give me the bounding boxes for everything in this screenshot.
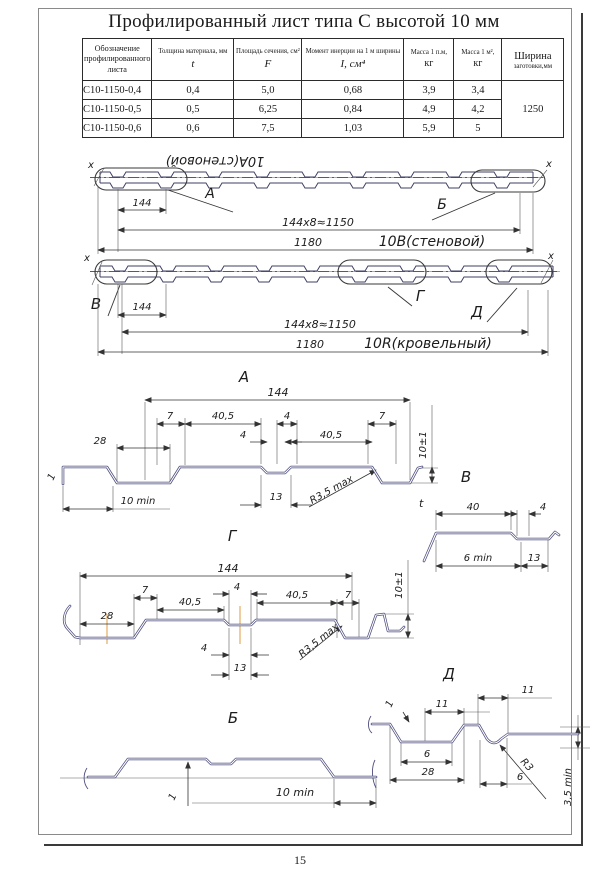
- dim-label: 6 min: [464, 553, 492, 564]
- strip1-drawing: 10А(стеновой) х х А Б 144 144х8≈1150: [87, 153, 552, 254]
- table-cell: 5: [454, 119, 502, 138]
- col-header-area: Площадь сечения, см²F: [234, 39, 302, 81]
- table-cell: 7,5: [234, 119, 302, 138]
- callout-letter-b: Б: [437, 197, 447, 213]
- table-cell: 3,4: [454, 81, 502, 100]
- table-cell: С10-1150-0,6: [83, 119, 152, 138]
- section-axis-mark: х: [87, 160, 94, 171]
- callout-letter-d: Д: [470, 303, 483, 321]
- detail-g-dimensions: 144 7 40,5 4 40,5 7 28 4 13: [80, 560, 414, 680]
- dim-label: 7: [142, 585, 149, 596]
- strip1-dimensions: 144 144х8≈1150 1180 10В(стеновой): [98, 186, 533, 254]
- dim-label: 40,5: [212, 411, 234, 422]
- table-row: С10-1150-0,6 0,6 7,5 1,03 5,9 5: [83, 119, 564, 138]
- dim-label: 3,5 min: [563, 768, 574, 806]
- col-header-inertia: Момент инерции на 1 м шириныI, см⁴: [302, 39, 404, 81]
- table-cell: 5,9: [404, 119, 454, 138]
- dim-label: 10 min: [276, 786, 314, 799]
- table-cell: 3,9: [404, 81, 454, 100]
- table-cell: 0,5: [152, 100, 234, 119]
- dim-label: 40,5: [286, 590, 308, 601]
- dim-label: 1: [384, 699, 397, 709]
- callout-letter-v: В: [91, 295, 101, 313]
- strip2-drawing: х х В Г Д 144 144х8≈1150 1180 10R(кровел…: [83, 251, 560, 356]
- table-cell: 5,0: [234, 81, 302, 100]
- callout-letter-a: А: [204, 186, 215, 202]
- dim-label: 11: [436, 699, 449, 710]
- dim-label: 28: [422, 767, 435, 778]
- dim-label: 4: [284, 411, 290, 422]
- detail-d-drawing: Д 1 11 11 6 28 6 R3: [368, 665, 590, 806]
- table-cell: 6,25: [234, 100, 302, 119]
- dim-label: 144: [268, 386, 289, 399]
- detail-v-drawing: В 40 4 6 min 13: [424, 468, 559, 572]
- detail-label-d: Д: [442, 665, 455, 683]
- detail-v-dimensions: 40 4 6 min 13: [436, 502, 548, 572]
- dim-label: 28: [101, 611, 114, 622]
- dim-label: 4: [201, 643, 207, 654]
- table-row: С10-1150-0,4 0,4 5,0 0,68 3,9 3,4 1250: [83, 81, 564, 100]
- dim-label: 7: [379, 411, 386, 422]
- detail-b-drawing: Б 1 10 min: [60, 709, 376, 808]
- table-cell: 1,03: [302, 119, 404, 138]
- dim-label: 13: [528, 553, 541, 564]
- radius-note: R3,5 max: [308, 474, 355, 507]
- dim-label: 1180: [296, 338, 324, 351]
- detail-d-dimensions: 1 11 11 6 28 6 R3 3,5 min: [384, 685, 590, 806]
- section-axis-mark: х: [547, 251, 554, 262]
- detail-label-b: Б: [228, 709, 238, 727]
- dim-label: 4: [540, 502, 546, 513]
- dim-label: 13: [270, 492, 283, 503]
- table-row: С10-1150-0,5 0,5 6,25 0,84 4,9 4,2: [83, 100, 564, 119]
- dim-label: 144: [218, 562, 239, 575]
- dim-label: 7: [167, 411, 174, 422]
- col-header-mass-m2: Масса 1 м²,кг: [454, 39, 502, 81]
- table-cell: 0,84: [302, 100, 404, 119]
- dim-label: 11: [522, 685, 535, 696]
- table-cell-blank-width: 1250: [502, 81, 564, 138]
- dim-label: 4: [234, 582, 240, 593]
- detail-callout-oval-b: [471, 170, 545, 192]
- sheet-name-label: 10В(стеновой): [379, 234, 485, 250]
- dim-label: 40: [467, 502, 480, 513]
- detail-label-a: А: [238, 368, 249, 386]
- dim-label: 10±1: [394, 571, 405, 598]
- dim-label: 6: [424, 749, 430, 760]
- page-title: Профилированный лист типа С высотой 10 м…: [40, 11, 568, 33]
- detail-g-drawing: Г 144 7 40,5 4 40,5 7 28: [64, 527, 414, 680]
- table-cell: 4,9: [404, 100, 454, 119]
- detail-a-dimensions: 144 7 40,5 4 7 4 40,5 28 10 min: [46, 386, 438, 512]
- strip1-flipped-name: 10А(стеновой): [166, 153, 265, 168]
- col-header-designation: Обозначение профилированного листа: [83, 39, 152, 81]
- dim-label: 1: [46, 472, 59, 482]
- dim-label: 144х8≈1150: [282, 216, 354, 229]
- dim-label: 1180: [294, 236, 322, 249]
- dim-label: 40,5: [179, 597, 201, 608]
- dim-label: 10±1: [418, 431, 429, 458]
- page-number: 15: [0, 853, 600, 868]
- detail-callout-oval-a: [95, 168, 187, 190]
- table-cell: 0,4: [152, 81, 234, 100]
- detail-label-g: Г: [228, 527, 238, 545]
- drawing-page: Профилированный лист типа С высотой 10 м…: [0, 0, 600, 885]
- profile-drawings: 10А(стеновой) х х А Б 144 144х8≈1150: [0, 140, 600, 885]
- dim-label: 4: [240, 430, 246, 441]
- dim-label: 7: [345, 590, 352, 601]
- sheet-name-label: 10R(кровельный): [364, 336, 492, 352]
- detail-a-drawing: А 144 7 40,5 4 7 4 40,5 28: [46, 368, 438, 512]
- col-header-blank-width: Шириназаготовки,мм: [502, 39, 564, 81]
- dim-label: 40,5: [320, 430, 342, 441]
- section-axis-mark: х: [83, 253, 90, 264]
- dim-label: 144х8≈1150: [284, 318, 356, 331]
- table-cell: 4,2: [454, 100, 502, 119]
- detail-label-v: В: [461, 468, 471, 486]
- spec-table: Обозначение профилированного листа Толщи…: [82, 38, 564, 138]
- col-header-mass-lm: Масса 1 п.м,кг: [404, 39, 454, 81]
- dim-label: 10 min: [121, 496, 156, 507]
- table-cell: С10-1150-0,4: [83, 81, 152, 100]
- dim-label: 144: [132, 198, 151, 209]
- dim-label: 28: [94, 436, 107, 447]
- dim-label: 6: [517, 772, 523, 783]
- table-cell: 0,68: [302, 81, 404, 100]
- dim-label: 13: [234, 663, 247, 674]
- table-cell: 0,6: [152, 119, 234, 138]
- dim-label: 1: [167, 792, 180, 802]
- section-axis-mark: х: [545, 159, 552, 170]
- col-header-thickness: Толщина материала, ммt: [152, 39, 234, 81]
- radius-note: R3,5 max: [297, 622, 341, 661]
- table-cell: С10-1150-0,5: [83, 100, 152, 119]
- callout-letter-g: Г: [416, 287, 426, 305]
- thickness-label: t: [419, 497, 424, 510]
- dim-label: 144: [132, 302, 151, 313]
